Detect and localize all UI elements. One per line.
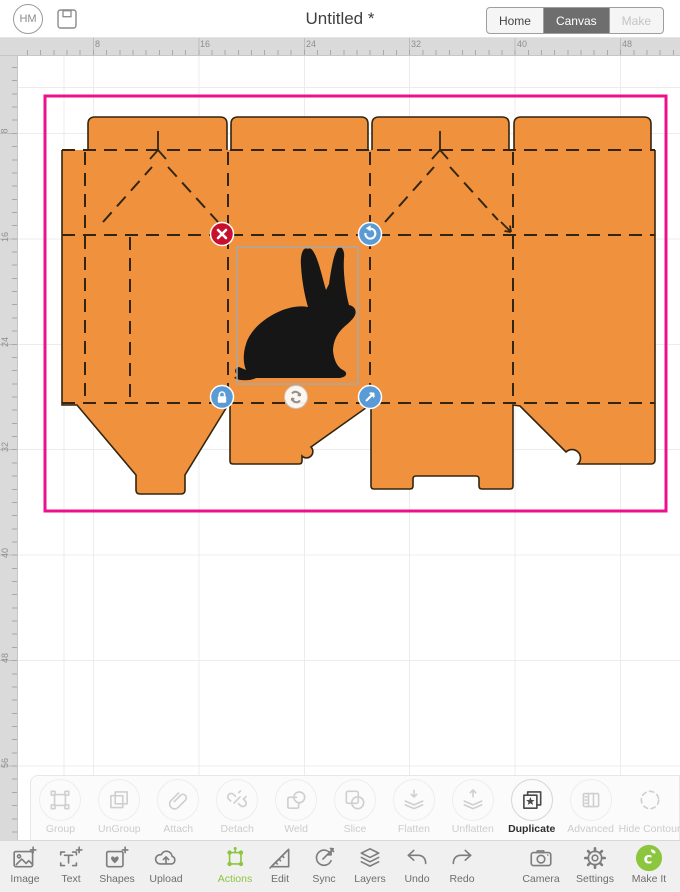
action-label: Detach: [221, 823, 254, 835]
undo-icon: [404, 845, 430, 871]
tool-label: Edit: [271, 873, 289, 885]
action-duplicate[interactable]: Duplicate: [502, 779, 561, 840]
action-label: Unflatten: [452, 823, 494, 835]
ruler-label: 40: [517, 39, 527, 49]
ruler-label: 16: [0, 232, 10, 242]
duplicate-icon: [519, 787, 545, 813]
svg-text:c: c: [644, 850, 653, 868]
ruler-label: 8: [0, 128, 10, 133]
bottom-toolbar: Image Text Shapes Upload: [0, 840, 680, 892]
flatten-icon: [401, 787, 427, 813]
tool-label: Layers: [354, 873, 386, 885]
shapes-icon: [104, 845, 130, 871]
ruler-label: 48: [622, 39, 632, 49]
make-it-button[interactable]: c Make It: [622, 844, 676, 885]
tool-label: Text: [61, 873, 80, 885]
nav-canvas-button[interactable]: Canvas: [543, 8, 609, 33]
action-advanced: Advanced: [561, 779, 620, 840]
action-label: Slice: [344, 823, 367, 835]
nav-make-button[interactable]: Make: [609, 8, 663, 33]
tool-label: Undo: [404, 873, 429, 885]
tool-label: Settings: [576, 873, 614, 885]
action-group: Group: [31, 779, 90, 840]
cricut-logo-icon: c: [635, 844, 663, 872]
ungroup-icon: [106, 787, 132, 813]
weld-icon: [283, 787, 309, 813]
action-hide-contour: Hide Contour: [620, 779, 679, 840]
action-label: Weld: [284, 823, 308, 835]
tool-label: Image: [10, 873, 39, 885]
tool-label: Sync: [312, 873, 335, 885]
toolbar-group-edit: Actions Edit Sync La: [212, 844, 484, 885]
ruler-label: 16: [200, 39, 210, 49]
redo-button[interactable]: Redo: [440, 844, 484, 885]
upload-tool[interactable]: Upload: [140, 844, 192, 885]
action-label: Advanced: [567, 823, 614, 835]
canvas-scene: [18, 56, 680, 840]
rotate-handle[interactable]: [359, 223, 382, 246]
tool-label: Upload: [149, 873, 182, 885]
edit-icon: [267, 845, 293, 871]
ruler-label: 24: [0, 337, 10, 347]
tool-label: Actions: [218, 873, 252, 885]
actions-icon: [222, 845, 248, 871]
nav-segmented-control: Home Canvas Make: [486, 7, 664, 34]
tool-label: Redo: [449, 873, 474, 885]
redo-icon: [449, 845, 475, 871]
ruler-label: 32: [0, 442, 10, 452]
unflatten-icon: [460, 787, 486, 813]
settings-tool[interactable]: Settings: [568, 844, 622, 885]
ruler-label: 32: [411, 39, 421, 49]
ruler-label: 48: [0, 653, 10, 663]
top-bar: HM Untitled * Home Canvas Make: [0, 0, 680, 38]
resize-handle[interactable]: [359, 386, 382, 409]
action-label: Duplicate: [508, 823, 555, 835]
action-label: Hide Contour: [619, 823, 680, 835]
camera-tool[interactable]: Camera: [514, 844, 568, 885]
text-icon: [58, 845, 84, 871]
undo-button[interactable]: Undo: [394, 844, 440, 885]
toolbar-group-system: Camera Settings c Make It: [514, 844, 676, 885]
ruler-corner: [0, 38, 18, 56]
ruler-label: 8: [95, 39, 100, 49]
attach-icon: [165, 787, 191, 813]
edit-tool[interactable]: Edit: [258, 844, 302, 885]
tool-label: Camera: [522, 873, 559, 885]
action-slice: Slice: [326, 779, 385, 840]
slice-icon: [342, 787, 368, 813]
action-weld: Weld: [267, 779, 326, 840]
action-label: Group: [46, 823, 75, 835]
actions-panel: Group UnGroup Attach Detach Weld: [30, 775, 680, 840]
sync-icon: [311, 845, 337, 871]
layers-icon: [357, 845, 383, 871]
settings-icon: [582, 845, 608, 871]
shapes-tool[interactable]: Shapes: [94, 844, 140, 885]
toolbar-group-insert: Image Text Shapes Upload: [2, 844, 192, 885]
layers-tool[interactable]: Layers: [346, 844, 394, 885]
ruler-label: 24: [306, 39, 316, 49]
lock-handle[interactable]: [211, 386, 234, 409]
image-icon: [12, 845, 38, 871]
ruler-label: 40: [0, 548, 10, 558]
text-tool[interactable]: Text: [48, 844, 94, 885]
sync-tool[interactable]: Sync: [302, 844, 346, 885]
move-handle[interactable]: [285, 386, 308, 409]
horizontal-ruler: 8 16 24 32 40 48: [18, 38, 680, 56]
group-icon: [47, 787, 73, 813]
nav-home-button[interactable]: Home: [487, 8, 543, 33]
detach-icon: [224, 787, 250, 813]
action-unflatten: Unflatten: [443, 779, 502, 840]
action-attach: Attach: [149, 779, 208, 840]
action-label: Flatten: [398, 823, 430, 835]
action-label: Attach: [163, 823, 193, 835]
action-label: UnGroup: [98, 823, 141, 835]
advanced-icon: [578, 787, 604, 813]
save-icon[interactable]: [56, 8, 78, 30]
upload-icon: [153, 845, 179, 871]
tool-label: Shapes: [99, 873, 135, 885]
camera-icon: [528, 845, 554, 871]
vertical-ruler: 8 16 24 32 40 48 56: [0, 56, 18, 840]
actions-tool[interactable]: Actions: [212, 844, 258, 885]
action-flatten: Flatten: [384, 779, 443, 840]
delete-handle[interactable]: [211, 223, 234, 246]
hide-contour-icon: [637, 787, 663, 813]
action-detach: Detach: [208, 779, 267, 840]
ruler-label: 56: [0, 758, 10, 768]
action-ungroup: UnGroup: [90, 779, 149, 840]
image-tool[interactable]: Image: [2, 844, 48, 885]
tool-label: Make It: [632, 873, 666, 885]
avatar[interactable]: HM: [13, 4, 43, 34]
